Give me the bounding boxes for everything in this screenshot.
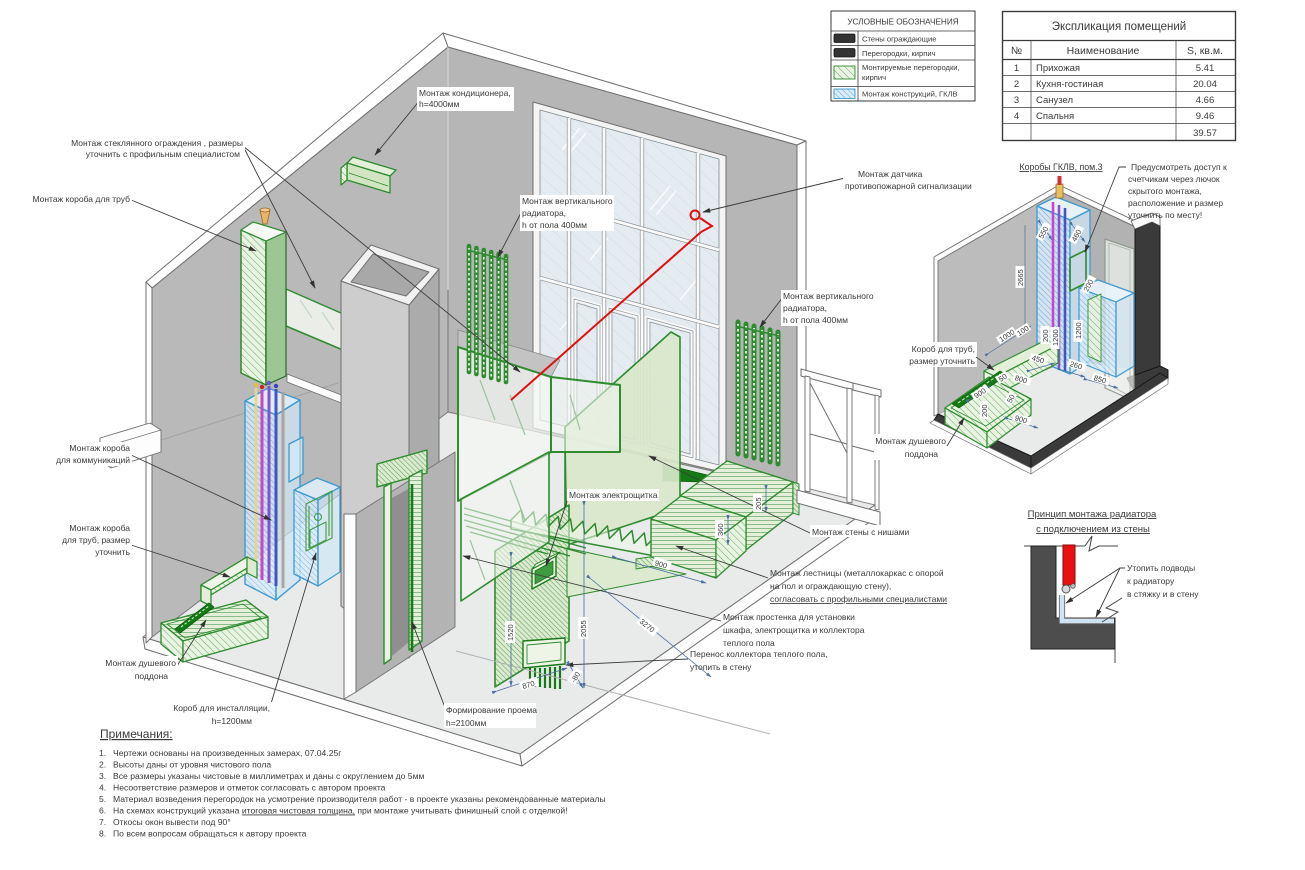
- svg-text:Примечания:: Примечания:: [100, 727, 173, 741]
- svg-text:9.46: 9.46: [1196, 111, 1215, 122]
- svg-text:По всем вопросам обращаться к: По всем вопросам обращаться к автору про…: [113, 829, 307, 839]
- svg-text:h=2100мм: h=2100мм: [446, 718, 486, 728]
- svg-text:Стены ограждающие: Стены ограждающие: [862, 35, 936, 44]
- svg-text:Монтаж короба: Монтаж короба: [69, 443, 130, 453]
- svg-text:3: 3: [1014, 95, 1019, 106]
- svg-text:Перенос коллектора теплого пол: Перенос коллектора теплого пола,: [690, 649, 828, 659]
- svg-text:Несоответствие размеров и отме: Несоответствие размеров и отметок соглас…: [113, 783, 386, 793]
- svg-text:размер уточнить: размер уточнить: [909, 356, 975, 366]
- svg-text:противопожарной сигнализации: противопожарной сигнализации: [845, 181, 972, 191]
- svg-text:поддона: поддона: [905, 449, 938, 459]
- svg-text:счетчикам через лючок: счетчикам через лючок: [1128, 174, 1220, 184]
- svg-text:Монтаж вертикального: Монтаж вертикального: [522, 196, 613, 206]
- svg-text:1200: 1200: [1051, 329, 1060, 346]
- svg-text:39.57: 39.57: [1193, 128, 1217, 139]
- svg-text:шкафа, электрощитка и коллекто: шкафа, электрощитка и коллектора: [723, 625, 865, 635]
- svg-text:Монтаж стены с нишами: Монтаж стены с нишами: [812, 527, 910, 537]
- svg-text:Принцип монтажа радиатора: Принцип монтажа радиатора: [1028, 509, 1157, 520]
- svg-text:на пол и ограждающую стену),: на пол и ограждающую стену),: [770, 581, 891, 591]
- svg-text:Монтаж стеклянного ограждения: Монтаж стеклянного ограждения , размеры: [71, 138, 243, 148]
- svg-text:Монтаж душевого: Монтаж душевого: [105, 658, 176, 668]
- svg-text:3.: 3.: [99, 771, 106, 781]
- svg-text:Монтаж конструкций, ГКЛВ: Монтаж конструкций, ГКЛВ: [862, 90, 958, 99]
- svg-text:5.41: 5.41: [1196, 63, 1215, 74]
- svg-text:360: 360: [716, 523, 725, 536]
- svg-text:2.: 2.: [99, 760, 106, 770]
- svg-text:Все размеры указаны чистовые в: Все размеры указаны чистовые в миллиметр…: [113, 771, 424, 781]
- svg-text:согласовать с профильными спец: согласовать с профильными специалистами: [770, 594, 947, 604]
- svg-text:Монтаж душевого: Монтаж душевого: [875, 436, 946, 446]
- svg-text:4.: 4.: [99, 783, 106, 793]
- svg-text:h от пола 400мм: h от пола 400мм: [783, 315, 848, 325]
- svg-text:2: 2: [1014, 79, 1019, 90]
- svg-text:Высоты даны от уровня чистовог: Высоты даны от уровня чистового пола: [113, 760, 271, 770]
- svg-text:Монтаж лестницы (металлокаркас: Монтаж лестницы (металлокаркас с опорой: [770, 568, 944, 578]
- svg-text:S, кв.м.: S, кв.м.: [1187, 45, 1223, 57]
- svg-text:Монтаж короба для труб: Монтаж короба для труб: [32, 194, 130, 204]
- svg-text:Монтаж электрощитка: Монтаж электрощитка: [569, 490, 658, 500]
- svg-text:уточнить по месту!: уточнить по месту!: [1128, 210, 1202, 220]
- svg-text:Санузел: Санузел: [1036, 95, 1073, 106]
- svg-text:2055: 2055: [579, 620, 588, 637]
- svg-text:кирпич: кирпич: [862, 73, 886, 82]
- svg-text:радиатора,: радиатора,: [522, 208, 566, 218]
- svg-text:в стяжку и в стену: в стяжку и в стену: [1127, 589, 1199, 599]
- svg-text:расположение и размер: расположение и размер: [1128, 198, 1223, 208]
- svg-text:1: 1: [1014, 63, 1019, 74]
- svg-text:2665: 2665: [1016, 269, 1025, 286]
- svg-text:Кухня-гостиная: Кухня-гостиная: [1036, 79, 1103, 90]
- svg-text:20.04: 20.04: [1193, 79, 1217, 90]
- svg-text:с подключением из стены: с подключением из стены: [1036, 524, 1150, 535]
- svg-text:8.: 8.: [99, 829, 106, 839]
- svg-text:Монтируемые перегородки,: Монтируемые перегородки,: [862, 63, 960, 72]
- svg-text:200: 200: [1041, 329, 1050, 342]
- svg-text:Наименование: Наименование: [1067, 45, 1140, 57]
- svg-text:для труб, размер: для труб, размер: [62, 535, 130, 545]
- svg-text:Спальня: Спальня: [1036, 111, 1074, 122]
- svg-text:5.: 5.: [99, 794, 106, 804]
- svg-text:Монтаж простенка для установки: Монтаж простенка для установки: [723, 612, 855, 622]
- svg-text:радиатора,: радиатора,: [783, 303, 827, 313]
- svg-text:скрытого монтажа,: скрытого монтажа,: [1128, 186, 1202, 196]
- svg-text:4.66: 4.66: [1196, 95, 1215, 106]
- svg-text:Монтаж вертикального: Монтаж вертикального: [783, 291, 874, 301]
- svg-text:Коробы ГКЛВ, пом.3: Коробы ГКЛВ, пом.3: [1019, 162, 1102, 172]
- svg-text:1200: 1200: [1074, 322, 1083, 339]
- svg-text:Монтаж кондиционера,: Монтаж кондиционера,: [419, 88, 511, 98]
- svg-text:Откосы окон вывести под 90°: Откосы окон вывести под 90°: [113, 817, 231, 827]
- svg-text:205: 205: [754, 497, 763, 510]
- svg-text:1520: 1520: [506, 624, 515, 641]
- svg-text:Утопить подводы: Утопить подводы: [1127, 563, 1195, 573]
- svg-text:1.: 1.: [99, 748, 106, 758]
- svg-text:Чертежи основаны на произведен: Чертежи основаны на произведенных замера…: [113, 748, 341, 758]
- svg-text:На схемах конструкций указана: На схемах конструкций указана итоговая ч…: [113, 806, 568, 816]
- svg-text:Короб для инсталляции,: Короб для инсталляции,: [173, 703, 270, 713]
- svg-text:уточнить с профильным специали: уточнить с профильным специалистом: [86, 149, 240, 159]
- svg-text:для коммуникаций: для коммуникаций: [56, 455, 130, 465]
- svg-text:теплого пола: теплого пола: [723, 638, 775, 648]
- svg-text:200: 200: [980, 404, 989, 417]
- svg-text:6.: 6.: [99, 806, 106, 816]
- svg-text:Материал возведения перегородо: Материал возведения перегородок на усмот…: [113, 794, 606, 804]
- svg-text:уточнить: уточнить: [95, 547, 130, 557]
- svg-text:Формирование проема: Формирование проема: [446, 705, 537, 715]
- svg-text:Экспликация помещений: Экспликация помещений: [1052, 21, 1187, 33]
- svg-text:h=1200мм: h=1200мм: [212, 716, 252, 726]
- svg-text:№: №: [1011, 45, 1022, 57]
- svg-text:Перегородки, кирпич: Перегородки, кирпич: [862, 49, 936, 58]
- svg-text:Предусмотреть доступ к: Предусмотреть доступ к: [1131, 162, 1227, 172]
- svg-text:h от пола 400мм: h от пола 400мм: [522, 220, 587, 230]
- svg-text:7.: 7.: [99, 817, 106, 827]
- svg-text:УСЛОВНЫЕ ОБОЗНАЧЕНИЯ: УСЛОВНЫЕ ОБОЗНАЧЕНИЯ: [847, 18, 958, 27]
- svg-text:h=4000мм: h=4000мм: [419, 99, 459, 109]
- svg-text:Монтаж датчика: Монтаж датчика: [858, 169, 923, 179]
- svg-text:поддона: поддона: [135, 671, 168, 681]
- svg-text:Короб для труб,: Короб для труб,: [912, 344, 975, 354]
- svg-text:4: 4: [1014, 111, 1019, 122]
- svg-text:Монтаж короба: Монтаж короба: [69, 523, 130, 533]
- svg-text:к радиатору: к радиатору: [1127, 576, 1175, 586]
- svg-text:Прихожая: Прихожая: [1036, 63, 1080, 74]
